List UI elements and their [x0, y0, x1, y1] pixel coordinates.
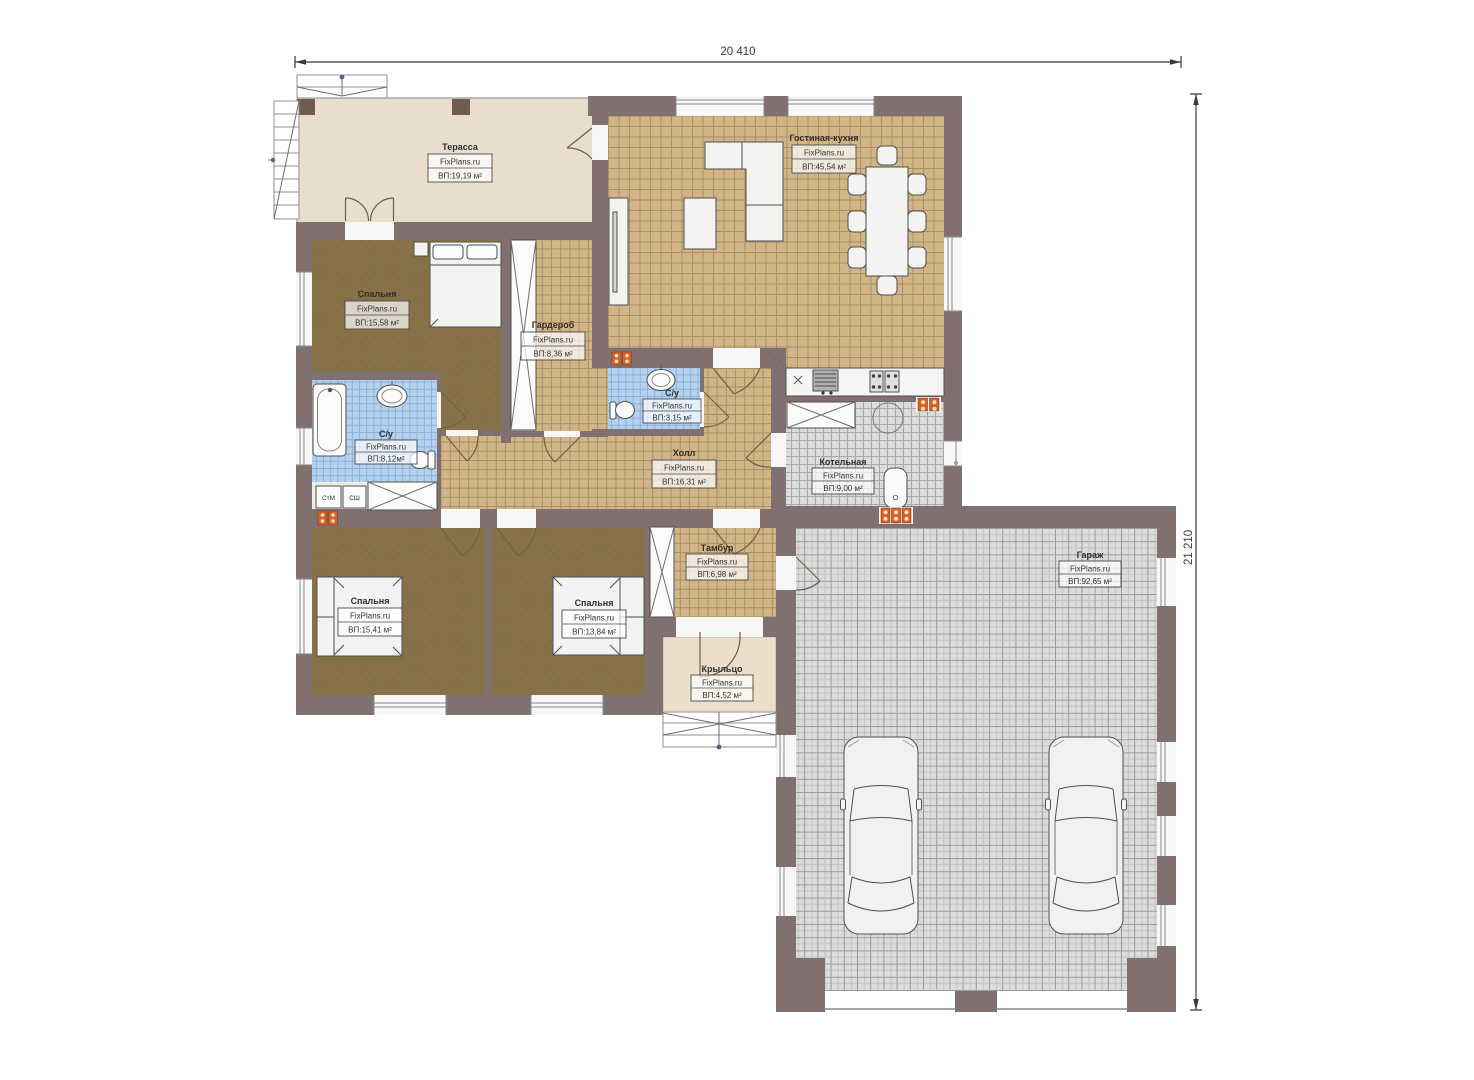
svg-text:ВП:15,41 м²: ВП:15,41 м²	[348, 626, 392, 635]
svg-text:С/у: С/у	[379, 429, 393, 439]
svg-text:ВП:3,15 м²: ВП:3,15 м²	[652, 414, 692, 423]
svg-text:Гардероб: Гардероб	[532, 320, 575, 330]
svg-text:Гараж: Гараж	[1077, 550, 1104, 560]
svg-text:Котельная: Котельная	[819, 457, 866, 467]
svg-text:ВП:13,84 м²: ВП:13,84 м²	[572, 628, 616, 637]
svg-text:FixPlans.ru: FixPlans.ru	[804, 149, 844, 158]
svg-text:FixPlans.ru: FixPlans.ru	[1070, 565, 1110, 574]
svg-text:ВП:9,00 м²: ВП:9,00 м²	[823, 484, 863, 493]
svg-text:ВП:92,65 м²: ВП:92,65 м²	[1068, 577, 1112, 586]
svg-text:ВП:8,36 м²: ВП:8,36 м²	[533, 350, 573, 359]
svg-text:ВП:8,12м²: ВП:8,12м²	[367, 455, 404, 464]
svg-text:С/у: С/у	[665, 388, 679, 398]
svg-text:ВП:16,31 м²: ВП:16,31 м²	[662, 478, 706, 487]
svg-text:Крыльцо: Крыльцо	[702, 664, 743, 674]
svg-text:FixPlans.ru: FixPlans.ru	[357, 305, 397, 314]
svg-text:FixPlans.ru: FixPlans.ru	[366, 443, 406, 452]
svg-text:FixPlans.ru: FixPlans.ru	[664, 464, 704, 473]
svg-text:FixPlans.ru: FixPlans.ru	[652, 402, 692, 411]
svg-text:FixPlans.ru: FixPlans.ru	[350, 612, 390, 621]
svg-text:О: О	[893, 493, 899, 502]
svg-text:СтМ: СтМ	[322, 495, 335, 502]
svg-text:FixPlans.ru: FixPlans.ru	[823, 472, 863, 481]
svg-text:FixPlans.ru: FixPlans.ru	[697, 558, 737, 567]
svg-text:ВП:19,19 м²: ВП:19,19 м²	[438, 172, 482, 181]
svg-text:ВП:4,52 м²: ВП:4,52 м²	[702, 691, 742, 700]
svg-text:ВП:45,54 м²: ВП:45,54 м²	[802, 163, 846, 172]
svg-text:Спальня: Спальня	[358, 289, 397, 299]
svg-text:Гостиная-кухня: Гостиная-кухня	[790, 133, 859, 143]
svg-text:Спальня: Спальня	[351, 596, 390, 606]
svg-text:Терасса: Терасса	[442, 142, 479, 152]
svg-text:Спальня: Спальня	[575, 598, 614, 608]
svg-text:СШ: СШ	[349, 495, 360, 502]
svg-text:20 410: 20 410	[720, 46, 755, 58]
svg-text:Тамбур: Тамбур	[701, 543, 734, 553]
svg-text:ВП:15,58 м²: ВП:15,58 м²	[355, 319, 399, 328]
svg-text:FixPlans.ru: FixPlans.ru	[574, 614, 614, 623]
svg-text:FixPlans.ru: FixPlans.ru	[533, 336, 573, 345]
svg-text:FixPlans.ru: FixPlans.ru	[702, 679, 742, 688]
svg-text:21 210: 21 210	[1183, 530, 1195, 565]
svg-text:FixPlans.ru: FixPlans.ru	[440, 158, 480, 167]
svg-text:ВП:6,98 м²: ВП:6,98 м²	[697, 570, 737, 579]
svg-text:Холл: Холл	[673, 448, 696, 458]
